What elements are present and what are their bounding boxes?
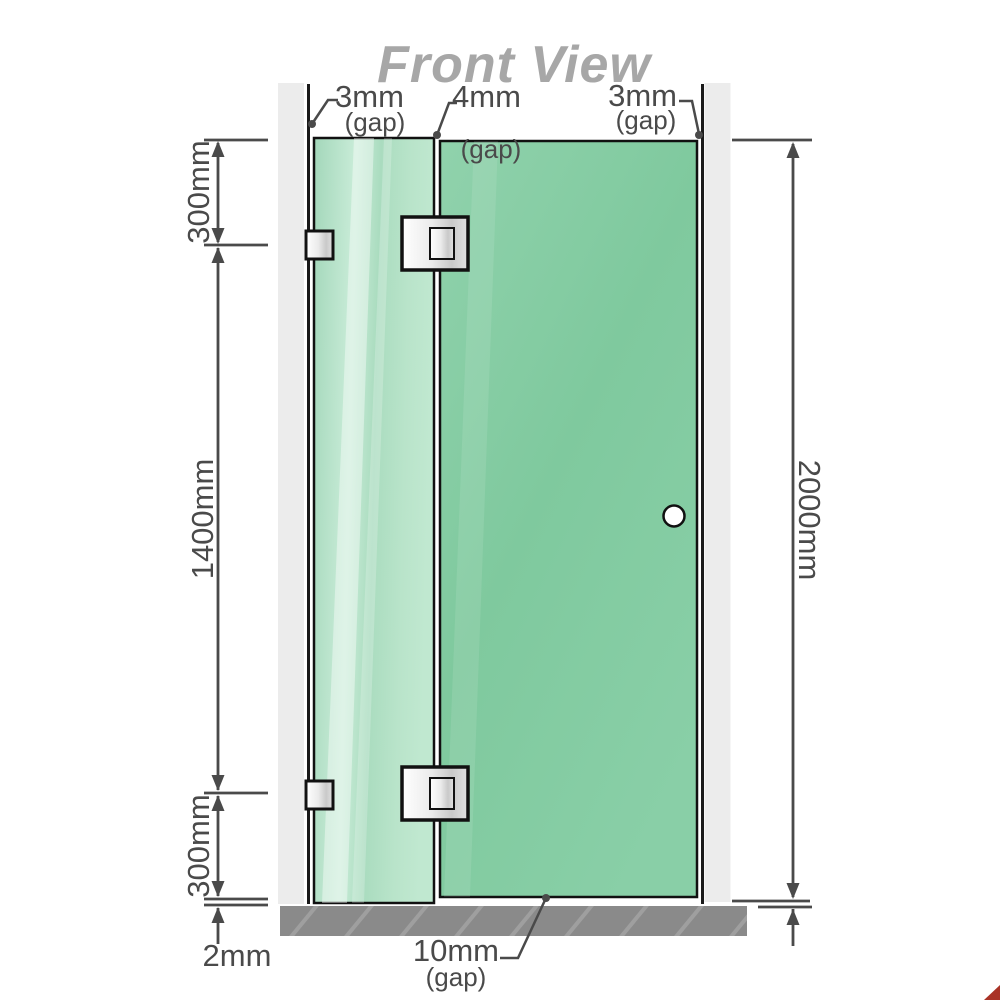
dim-label-floor-2mm: 2mm	[203, 938, 272, 973]
front-view-diagram-page: Front View	[0, 0, 1000, 1000]
door-handle-knob	[664, 506, 685, 527]
dim-label-bottom-300mm: 300mm	[181, 794, 216, 897]
gap-label-left-unit: (gap)	[345, 107, 406, 137]
leader-gap-right	[679, 101, 699, 134]
gap-label-middle-unit: (gap)	[461, 134, 522, 164]
left-wall-post	[278, 83, 304, 904]
dim-label-middle-1400mm: 1400mm	[185, 459, 220, 580]
gap-label-bottom-unit: (gap)	[426, 962, 487, 992]
dim-label-top-300mm: 300mm	[181, 140, 216, 243]
right-wall-post	[705, 83, 731, 902]
hinge-top	[402, 217, 468, 270]
wall-bracket-bottom	[306, 781, 333, 809]
gap-label-right-unit: (gap)	[616, 105, 677, 135]
shower-screen-front-view-drawing: Front View	[0, 0, 1000, 1000]
dim-label-total-2000mm: 2000mm	[792, 460, 827, 581]
gap-label-middle-value: 4mm	[452, 79, 521, 114]
wall-bracket-top	[306, 231, 333, 259]
hinge-bottom	[402, 767, 468, 820]
corner-mark	[984, 985, 1000, 1000]
